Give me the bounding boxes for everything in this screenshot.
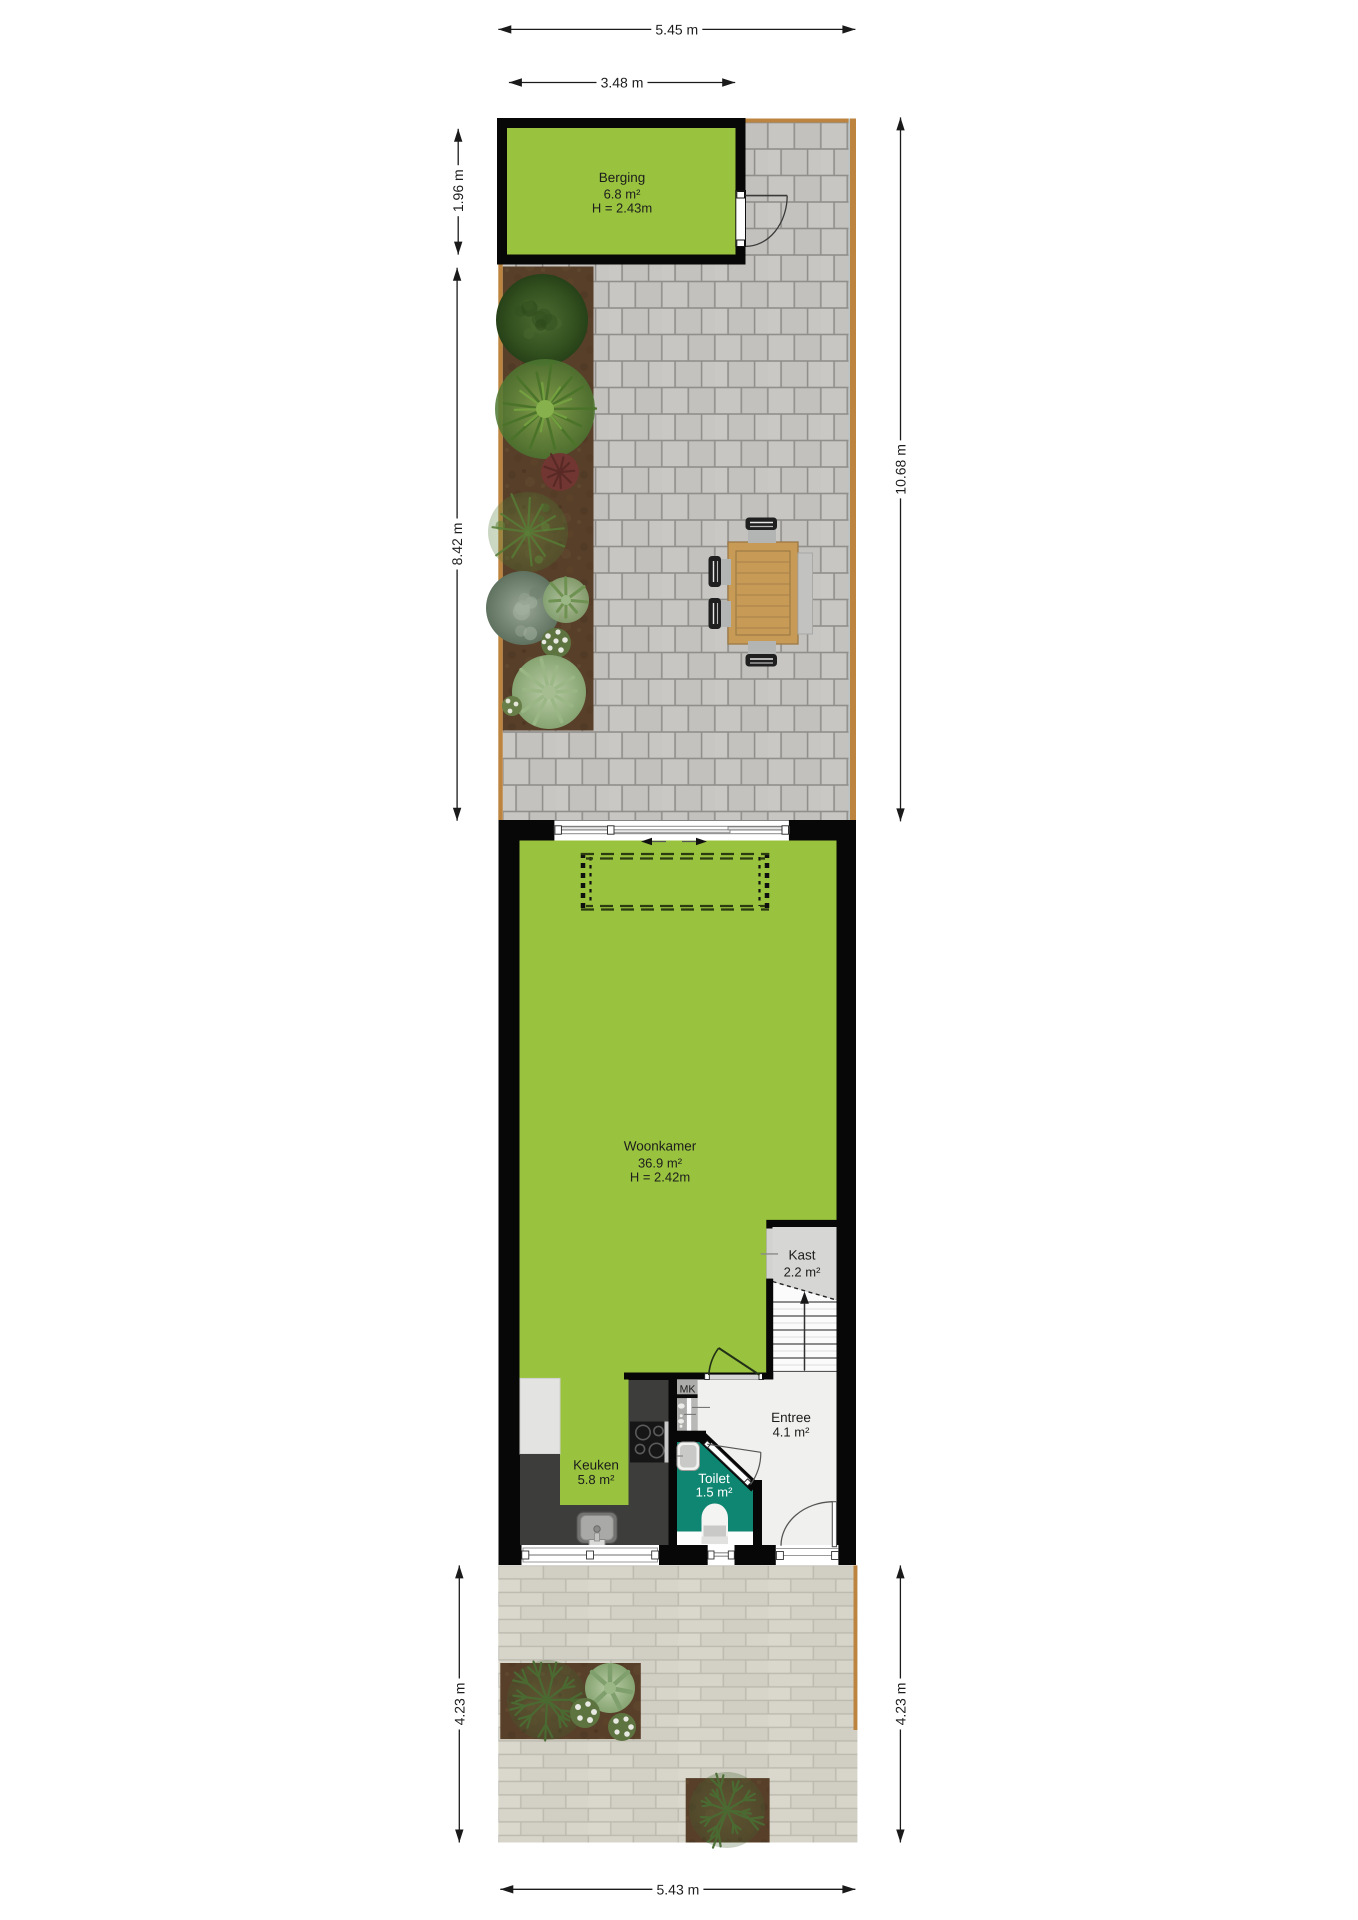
svg-text:Entree: Entree: [771, 1410, 811, 1425]
svg-text:H = 2.43m: H = 2.43m: [592, 201, 652, 216]
svg-text:8.42 m: 8.42 m: [449, 523, 465, 566]
svg-text:Berging: Berging: [599, 170, 646, 185]
svg-text:5.43 m: 5.43 m: [656, 1881, 699, 1897]
svg-text:H = 2.42m: H = 2.42m: [630, 1170, 690, 1185]
svg-text:MK: MK: [680, 1384, 696, 1396]
svg-text:5.8 m²: 5.8 m²: [578, 1472, 616, 1487]
svg-text:3.48 m: 3.48 m: [601, 75, 644, 91]
svg-text:10.68 m: 10.68 m: [893, 444, 909, 495]
svg-text:36.9 m²: 36.9 m²: [638, 1156, 683, 1171]
svg-text:2.2 m²: 2.2 m²: [784, 1265, 822, 1280]
svg-text:Woonkamer: Woonkamer: [624, 1139, 697, 1154]
svg-text:4.23 m: 4.23 m: [892, 1683, 908, 1726]
svg-text:1.5 m²: 1.5 m²: [696, 1485, 734, 1500]
svg-text:4.1 m²: 4.1 m²: [773, 1425, 811, 1440]
svg-text:Keuken: Keuken: [573, 1458, 619, 1473]
svg-text:1.96 m: 1.96 m: [450, 169, 466, 212]
svg-text:6.8 m²: 6.8 m²: [604, 187, 642, 202]
svg-text:4.23 m: 4.23 m: [451, 1683, 467, 1726]
svg-text:5.45 m: 5.45 m: [655, 21, 698, 37]
svg-text:Kast: Kast: [788, 1248, 815, 1263]
